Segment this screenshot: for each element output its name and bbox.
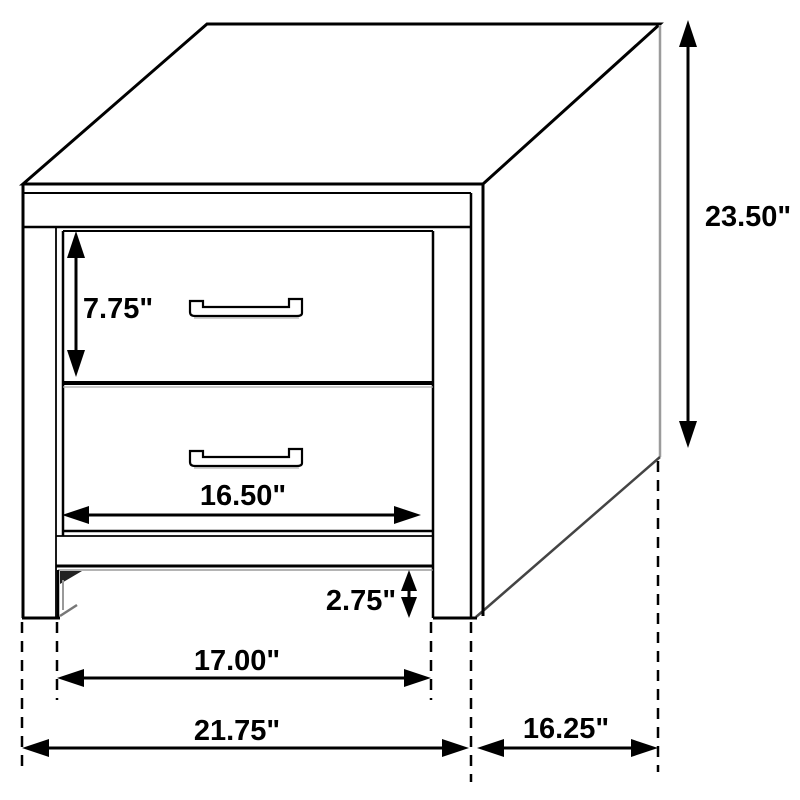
arrowhead-down-icon xyxy=(679,421,697,448)
diagram-canvas: 7.75" 23.50" 16.50" 2.75" 17.00" 21.75" xyxy=(0,0,800,800)
drawer-divider xyxy=(63,383,433,387)
dimension-leg-span: 17.00" xyxy=(57,645,431,687)
arrowhead-up-icon xyxy=(67,231,85,258)
arrowhead-left-icon xyxy=(57,669,84,687)
dimension-label-floor-clearance: 2.75" xyxy=(326,585,396,617)
arrowhead-right-icon xyxy=(394,506,421,524)
arrowhead-down-icon xyxy=(401,597,417,618)
top-panel xyxy=(23,24,660,193)
dimension-overall-depth: 16.25" xyxy=(477,713,658,757)
drawer-handle xyxy=(190,449,302,468)
dimension-drawer-width: 16.50" xyxy=(62,480,421,524)
dimension-label-overall-width: 21.75" xyxy=(194,715,280,747)
arrowhead-down-icon xyxy=(67,350,85,377)
dimension-overall-width: 21.75" xyxy=(22,715,469,757)
dimension-label-overall-depth: 16.25" xyxy=(523,713,609,745)
arrowhead-right-icon xyxy=(442,739,469,757)
drawer-handle xyxy=(190,299,302,318)
arrowhead-right-icon xyxy=(404,669,431,687)
arrowhead-up-icon xyxy=(401,570,417,591)
arrowhead-right-icon xyxy=(631,739,658,757)
dimension-label-drawer-height: 7.75" xyxy=(83,293,153,325)
arrowhead-up-icon xyxy=(679,20,697,47)
dimension-drawer-height: 7.75" xyxy=(67,231,153,377)
dimension-label-drawer-width: 16.50" xyxy=(200,480,286,512)
nightstand-dimension-diagram: 7.75" 23.50" 16.50" 2.75" 17.00" 21.75" xyxy=(0,0,800,800)
bottom-rail xyxy=(56,531,433,570)
dimension-overall-height: 23.50" xyxy=(679,20,791,448)
dimension-label-overall-height: 23.50" xyxy=(705,201,791,233)
arrowhead-left-icon xyxy=(62,506,89,524)
left-leg xyxy=(22,570,82,618)
dimension-floor-clearance: 2.75" xyxy=(326,570,417,618)
arrowhead-left-icon xyxy=(477,739,504,757)
front-frame xyxy=(23,184,471,618)
dimension-label-leg-span: 17.00" xyxy=(194,645,280,677)
arrowhead-left-icon xyxy=(22,739,49,757)
